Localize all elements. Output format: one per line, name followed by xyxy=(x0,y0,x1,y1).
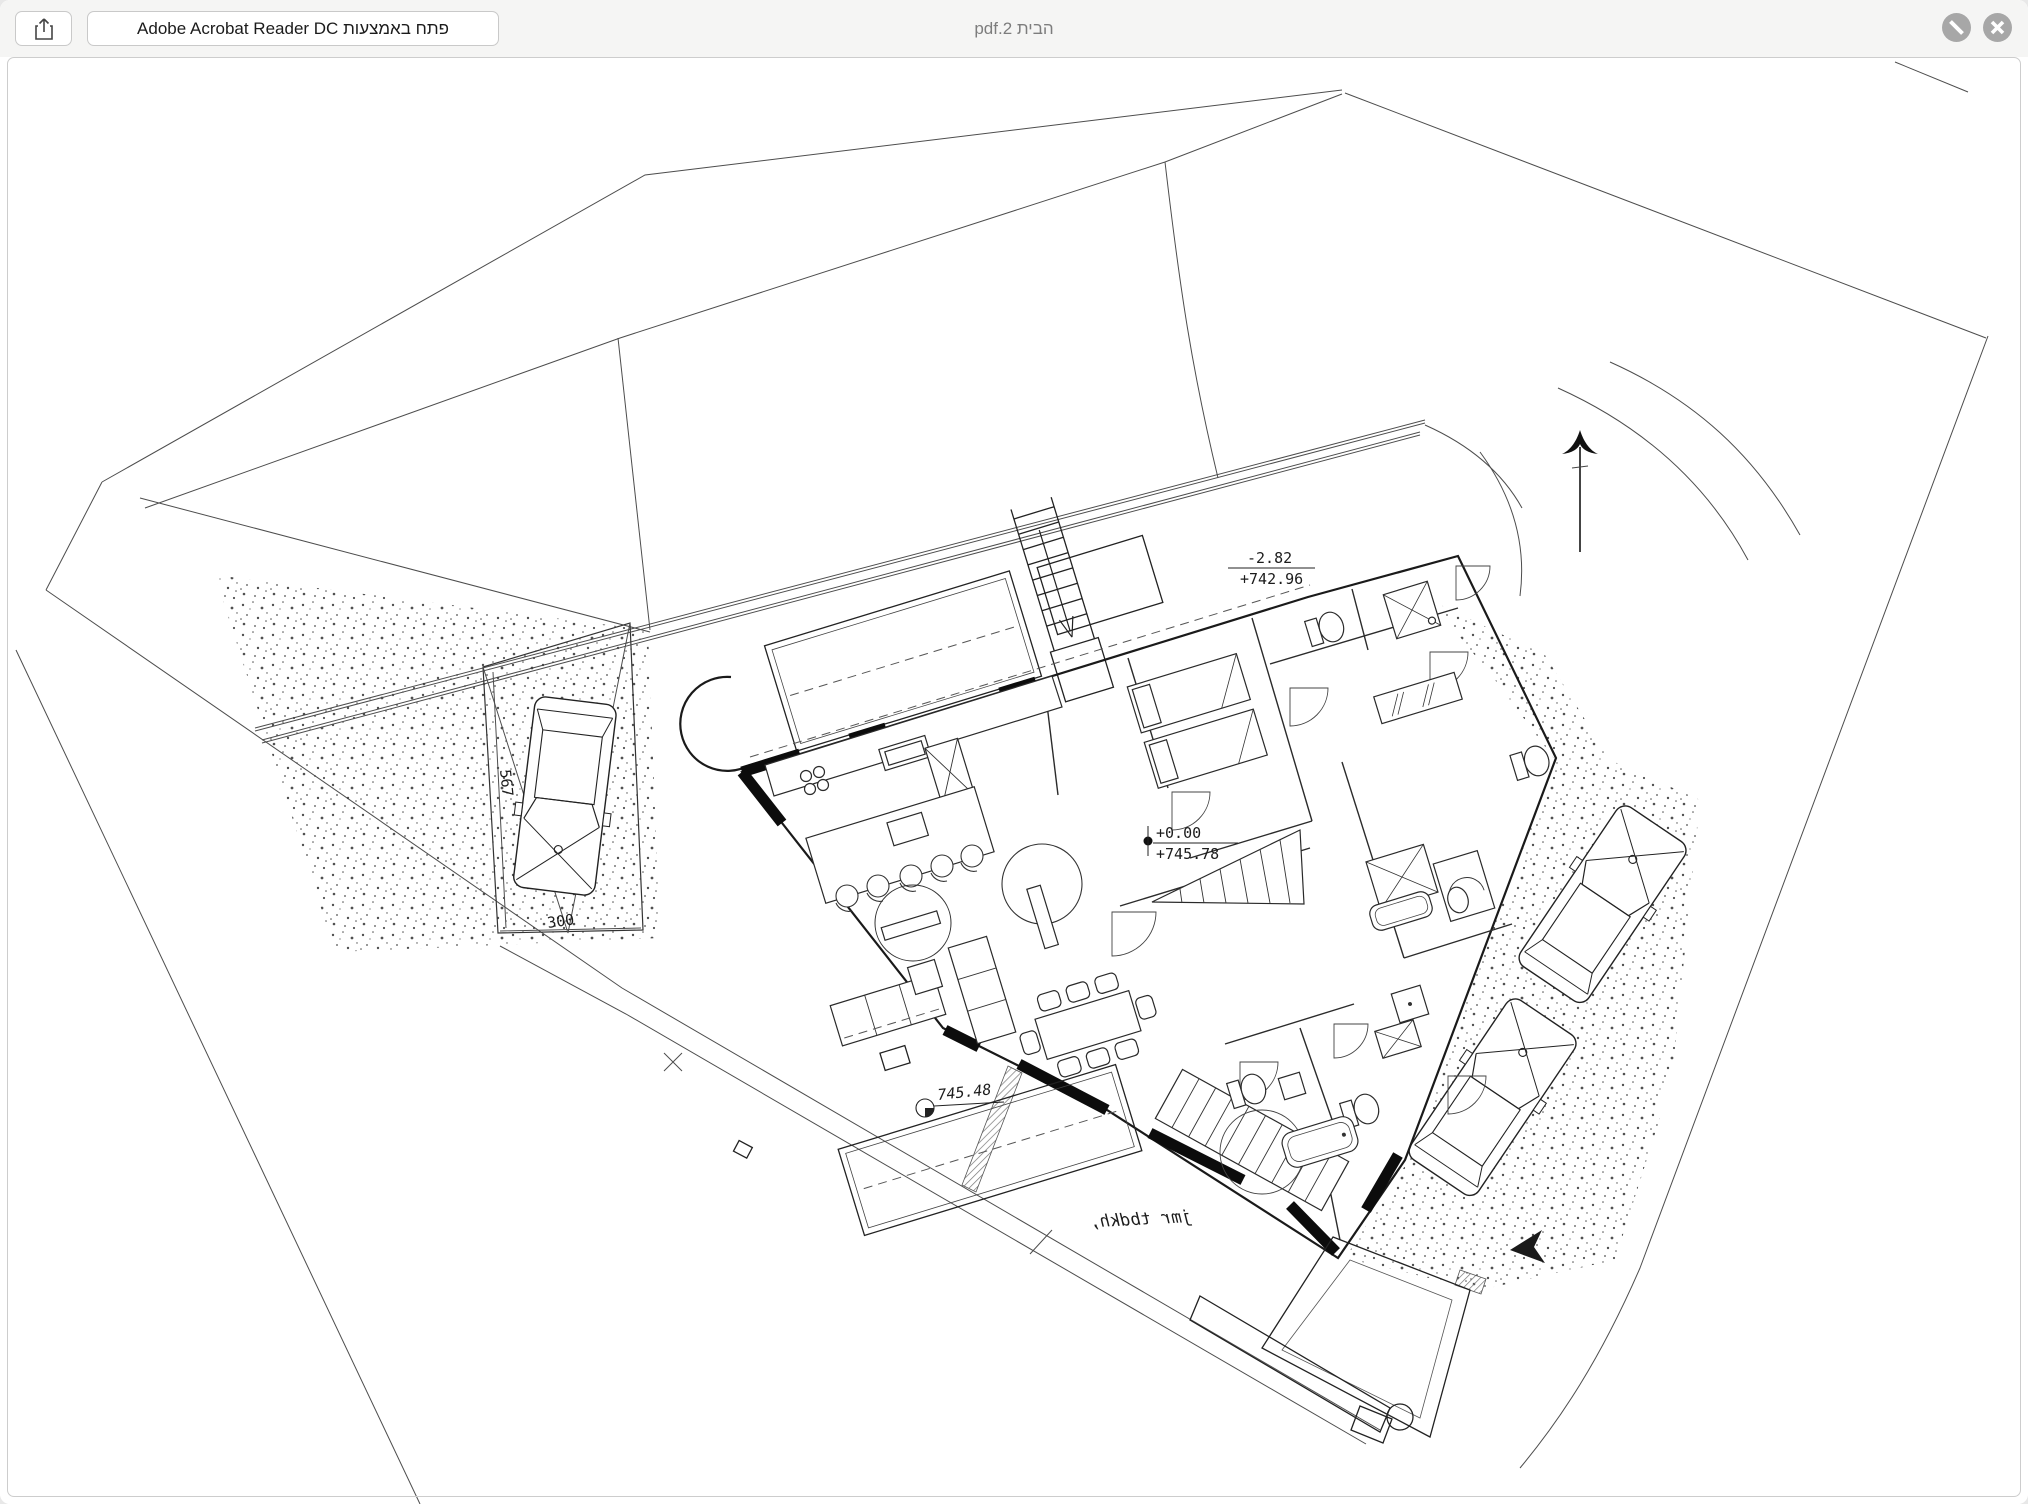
mirrored-note: jmr tbdkh, xyxy=(1089,1207,1192,1232)
spot-elevation: 745.48 xyxy=(937,1080,993,1104)
titlebar: Adobe Acrobat Reader DC פתח באמצעות pdf.… xyxy=(0,0,2028,57)
level-entry: +0.00 +745.78 xyxy=(1144,824,1239,863)
parking-width-dim: 300 xyxy=(546,910,575,932)
entry-elevation: +745.78 xyxy=(1156,845,1219,863)
close-circle-icon[interactable] xyxy=(1983,13,2012,42)
level-street: -2.82 +742.96 xyxy=(1228,549,1315,588)
open-with-button[interactable]: Adobe Acrobat Reader DC פתח באמצעות xyxy=(87,11,499,46)
share-button[interactable] xyxy=(15,11,72,46)
floorplan-drawing: 567 300 xyxy=(0,0,2028,1504)
street-delta: -2.82 xyxy=(1247,549,1292,567)
driveway-left: 567 300 xyxy=(215,575,660,952)
kitchen xyxy=(765,676,1082,949)
street-elevation: +742.96 xyxy=(1240,570,1303,588)
open-with-label: Adobe Acrobat Reader DC פתח באמצעות xyxy=(137,19,449,39)
parking-length-dim: 567 xyxy=(496,769,517,798)
quicklook-window: 567 300 xyxy=(0,0,2028,1504)
entry-delta: +0.00 xyxy=(1156,824,1201,842)
bedroom xyxy=(1127,654,1267,789)
share-icon xyxy=(34,17,54,41)
closet xyxy=(1374,672,1463,723)
living-room xyxy=(830,885,1016,1046)
slash-circle-icon[interactable] xyxy=(1942,13,1971,42)
north-arrow-icon xyxy=(1562,430,1598,552)
